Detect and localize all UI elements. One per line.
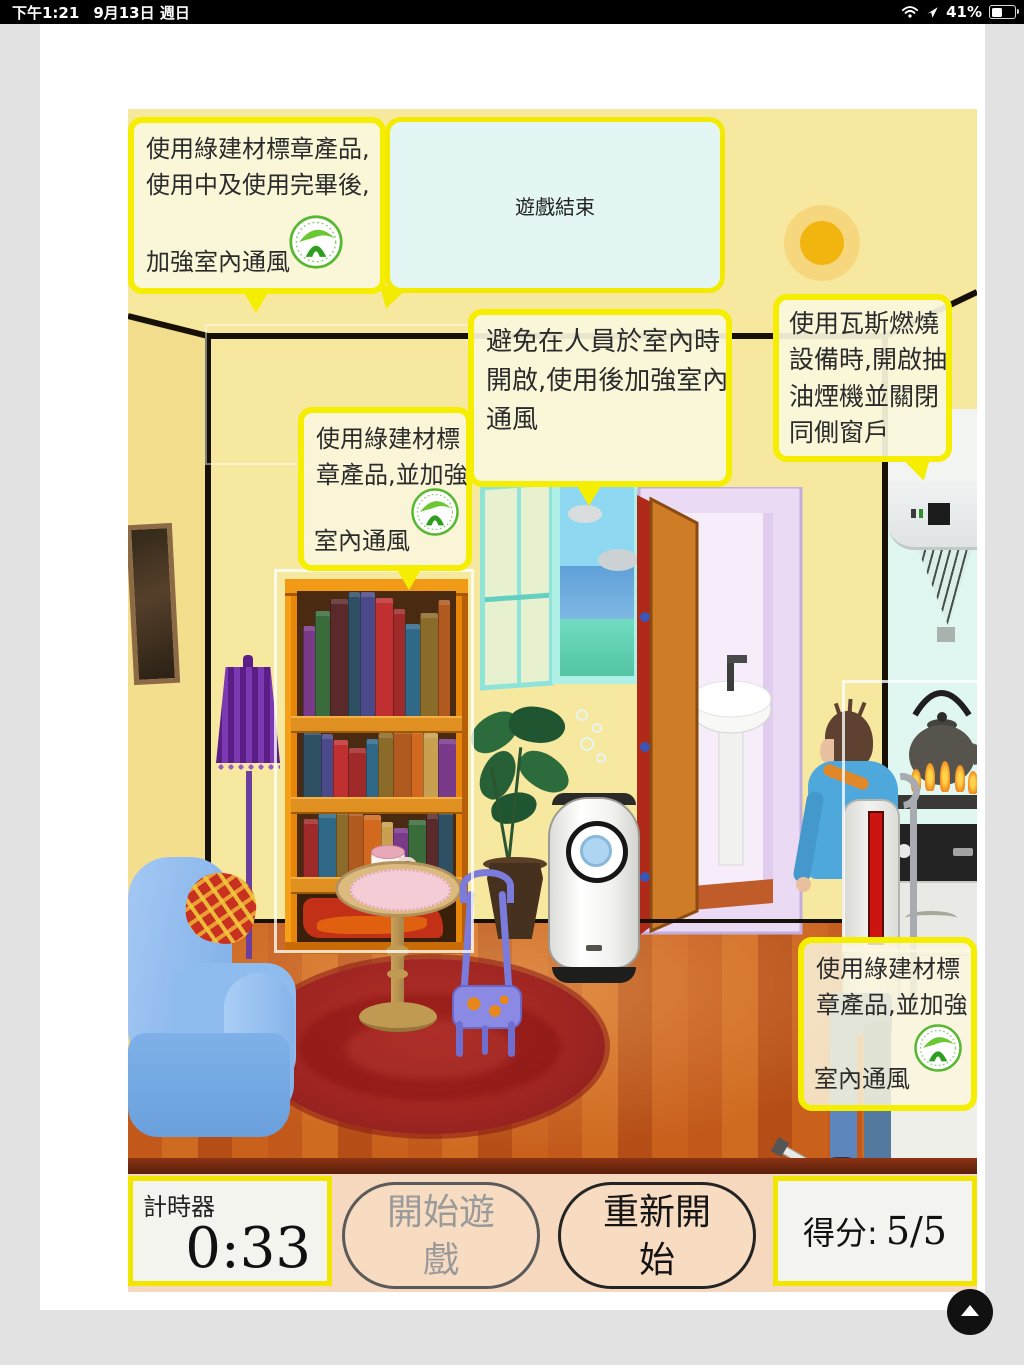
cloud — [598, 549, 638, 571]
round-rug — [255, 959, 605, 1134]
tip-line: 使用綠建材標 — [816, 951, 959, 987]
room-scene: 使用綠建材標章產品, 使用中及使用完畢後, 加強室內通風 遊戲結束 避免在人員於… — [128, 109, 977, 1174]
tip-line: 設備時,開啟抽 — [789, 342, 936, 378]
web-page: 使用綠建材標章產品, 使用中及使用完畢後, 加強室內通風 遊戲結束 避免在人員於… — [40, 24, 985, 1310]
tip-line: 開啟,使用後加強室內 — [486, 362, 714, 401]
button-line: 重新開 — [603, 1188, 711, 1236]
score-value: 5/5 — [886, 1209, 947, 1253]
tip-line: 章產品,並加強 — [816, 987, 959, 1023]
hud-bar: 計時器 0:33 開始遊 戲 重新開 始 得分: 5/5 — [128, 1174, 977, 1292]
tip-window: 避免在人員於室內時 開啟,使用後加強室內 通風 — [468, 309, 732, 487]
open-door — [633, 487, 808, 937]
tip-window-tail — [576, 484, 602, 506]
battery-percent: 41% — [946, 3, 982, 21]
green-building-material-logo-icon — [410, 487, 460, 537]
date: 9月13日 週日 — [93, 2, 190, 23]
restart-button[interactable]: 重新開 始 — [558, 1182, 756, 1289]
tip-sprayer: 使用綠建材標 章產品,並加強 室內通風 — [798, 937, 977, 1111]
button-line: 始 — [639, 1236, 675, 1284]
tip-line: 使用綠建材標 — [316, 421, 454, 457]
game-over-text: 遊戲結束 — [515, 191, 595, 220]
score-box: 得分: 5/5 — [773, 1176, 977, 1286]
status-right: 41% — [901, 3, 1024, 21]
sea — [560, 566, 634, 619]
highlight-stove-zone — [842, 680, 977, 952]
tip-bookshelf-tail — [396, 568, 422, 590]
tip-line: 使用瓦斯燃燒 — [789, 306, 936, 342]
tip-line: 室內通風 — [814, 1061, 910, 1097]
green-building-material-logo-icon — [913, 1023, 963, 1073]
tip-line: 使用中及使用完畢後, — [146, 167, 368, 203]
scroll-to-top-button[interactable] — [947, 1289, 993, 1335]
green-building-material-logo-icon — [288, 214, 344, 270]
game-canvas: 使用綠建材標章產品, 使用中及使用完畢後, 加強室內通風 遊戲結束 避免在人員於… — [128, 109, 977, 1292]
tip-bookshelf: 使用綠建材標 章產品,並加強 室內通風 — [298, 407, 472, 571]
tip-line: 避免在人員於室內時 — [486, 323, 714, 362]
wall-painting — [128, 523, 180, 685]
battery-icon — [989, 5, 1016, 19]
tip-line: 同側窗戶 — [789, 415, 936, 451]
status-left: 下午1:21 9月13日 週日 — [0, 2, 190, 23]
location-arrow-icon — [926, 6, 939, 19]
tip-line: 油煙機並關閉 — [789, 379, 936, 415]
window-open-pane — [480, 480, 554, 690]
score-label: 得分: — [803, 1208, 878, 1254]
face-side — [820, 739, 834, 763]
tip-line: 室內通風 — [314, 523, 410, 559]
button-line: 戲 — [423, 1236, 459, 1284]
tip-line: 通風 — [486, 401, 714, 440]
button-line: 開始遊 — [387, 1188, 495, 1236]
tip-paint-tail — [243, 291, 269, 313]
game-over-dialog: 遊戲結束 — [385, 117, 725, 293]
tip-paint: 使用綠建材標章產品, 使用中及使用完畢後, 加強室內通風 — [128, 117, 386, 294]
timer-value: 0:33 — [185, 1216, 311, 1281]
cloud — [568, 505, 602, 523]
clock: 下午1:21 — [12, 2, 79, 23]
sun-core — [800, 221, 844, 265]
status-bar: 下午1:21 9月13日 週日 41% — [0, 0, 1024, 24]
timer-box: 計時器 0:33 — [128, 1176, 332, 1286]
tip-line: 使用綠建材標章產品, — [146, 131, 368, 167]
tip-line: 加強室內通風 — [146, 244, 290, 280]
purifier-logo — [586, 945, 602, 951]
start-game-button[interactable]: 開始遊 戲 — [342, 1182, 540, 1289]
field — [560, 619, 634, 676]
tip-stove: 使用瓦斯燃燒 設備時,開啟抽 油煙機並關閉 同側窗戶 — [773, 294, 952, 462]
highlight-bookshelf-zone — [274, 569, 474, 953]
wifi-icon — [901, 5, 919, 19]
window-view-pane — [552, 479, 642, 684]
lamp-shade — [216, 667, 280, 763]
up-arrow-icon — [961, 1305, 979, 1316]
